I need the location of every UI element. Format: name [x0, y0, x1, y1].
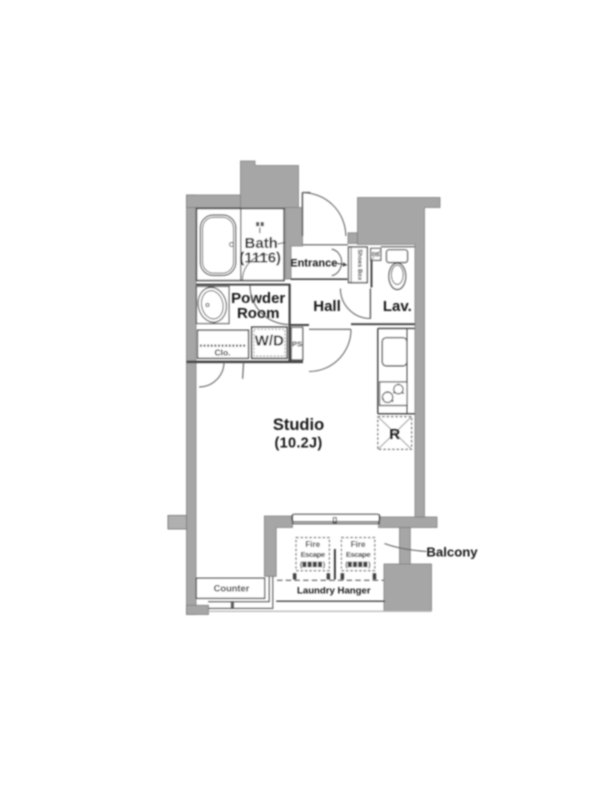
svg-text:Escape: Escape — [346, 550, 371, 559]
svg-text:(1116): (1116) — [239, 250, 281, 267]
svg-text:): ) — [368, 562, 370, 569]
svg-text:Clo.: Clo. — [214, 348, 230, 358]
svg-text:Hall: Hall — [313, 298, 341, 315]
svg-text:PS: PS — [292, 340, 302, 349]
svg-text:(10.2J): (10.2J) — [274, 435, 322, 451]
svg-text:Studio: Studio — [273, 416, 324, 434]
svg-text:R: R — [389, 426, 400, 443]
svg-text:Lav.: Lav. — [383, 298, 412, 315]
svg-text:Fire: Fire — [351, 540, 366, 549]
svg-text:Fire: Fire — [305, 540, 320, 549]
svg-text:W/D: W/D — [255, 332, 284, 349]
svg-text:Escape: Escape — [300, 550, 325, 559]
svg-text:): ) — [323, 562, 325, 569]
svg-text:Balcony: Balcony — [426, 545, 478, 560]
svg-text:Laundry Hanger: Laundry Hanger — [297, 585, 371, 596]
svg-text:Shoes Box: Shoes Box — [356, 249, 362, 281]
svg-text:Entrance: Entrance — [290, 258, 337, 270]
svg-text:Room: Room — [237, 305, 280, 322]
svg-text:Counter: Counter — [214, 583, 250, 593]
